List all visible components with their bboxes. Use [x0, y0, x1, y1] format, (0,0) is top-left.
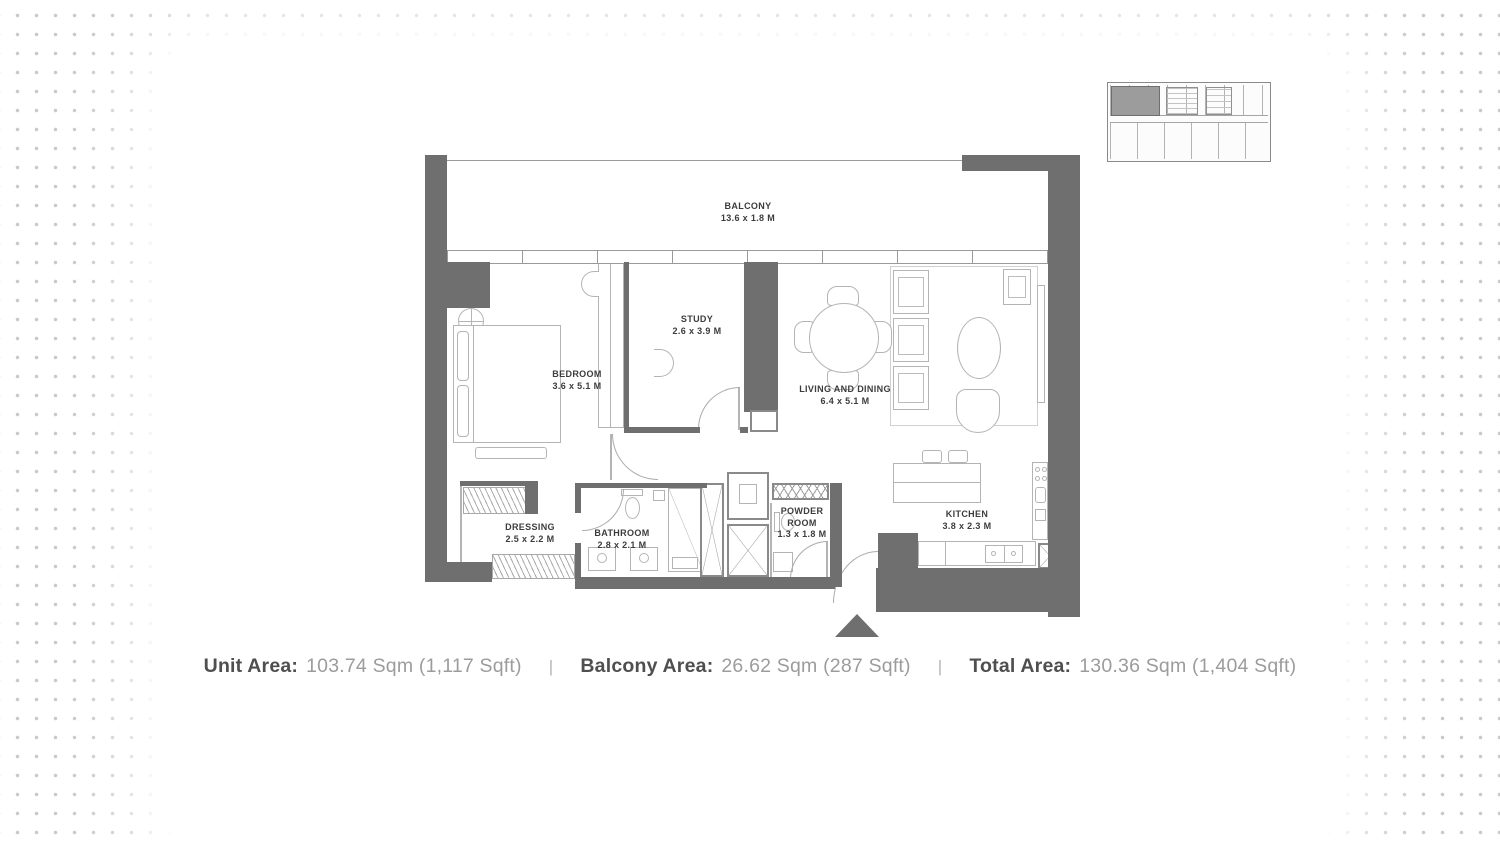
oven: [1035, 487, 1046, 503]
key-plan: [1107, 82, 1271, 162]
total-area-label: Total Area:: [969, 655, 1071, 678]
bed-pillow: [457, 331, 469, 381]
powder-sink: [773, 552, 793, 572]
counter-line: [945, 541, 946, 566]
stove-burner: [1042, 476, 1047, 481]
toilet-tank: [621, 489, 643, 496]
island-line: [894, 482, 980, 483]
wall-segment: [624, 262, 629, 430]
summary-separator: |: [549, 657, 554, 677]
sofa-seat: [893, 318, 929, 362]
kitchen-stool: [922, 450, 942, 463]
tv-console: [1037, 285, 1045, 403]
balcony-area-value: 26.62 Sqm (287 Sqft): [721, 655, 910, 678]
wall-segment: [525, 481, 538, 514]
wall-segment: [624, 427, 700, 433]
bed-line: [473, 325, 474, 443]
bed-pillow: [457, 385, 469, 437]
dressing-wardrobe: [492, 554, 575, 579]
wall-segment: [575, 483, 707, 488]
dressing-mirror: [581, 271, 599, 297]
wall-segment: [575, 577, 835, 589]
unit-area-label: Unit Area:: [204, 655, 298, 678]
lounge-chair: [956, 389, 1000, 433]
bedroom-wardrobe: [598, 262, 624, 428]
balcony-area-label: Balcony Area:: [580, 655, 713, 678]
kitchen-island: [893, 463, 981, 503]
study-basin: [654, 349, 674, 377]
wall-segment: [744, 262, 778, 412]
sofa-seat: [893, 270, 929, 314]
wall-segment: [830, 483, 842, 587]
room-label-powder-room: POWDER ROOM 1.3 x 1.8 M: [778, 506, 827, 541]
wardrobe-line: [610, 262, 611, 428]
floor-plan: BALCONY13.6 x 1.8 M BEDROOM3.6 x 5.1 M S…: [425, 153, 1080, 640]
room-label-study: STUDY2.6 x 3.9 M: [673, 313, 722, 337]
unit-area-value: 103.74 Sqm (1,117 Sqft): [306, 655, 522, 678]
bathroom-fixture: [653, 490, 665, 501]
ac-duct-inner: [739, 484, 757, 504]
key-plan-highlighted-unit: [1111, 86, 1160, 116]
room-label-living-dining: LIVING AND DINING6.4 x 5.1 M: [799, 383, 891, 407]
powder-wall-line: [770, 503, 772, 577]
sofa-seat: [893, 366, 929, 410]
powder-door-arc: [790, 541, 828, 579]
side-table: [1003, 269, 1031, 305]
entrance-arrow-icon: [835, 614, 879, 637]
study-door-arc: [698, 387, 740, 429]
wall-segment: [575, 483, 581, 513]
sink-drain: [991, 551, 996, 556]
sink-basin: [639, 553, 649, 563]
room-label-dressing: DRESSING2.5 x 2.2 M: [505, 521, 555, 545]
wall-segment: [425, 155, 447, 574]
duct-shaft: [700, 483, 724, 577]
summary-separator: |: [938, 657, 943, 677]
wall-segment: [740, 427, 748, 433]
room-label-balcony: BALCONY13.6 x 1.8 M: [721, 200, 775, 224]
dining-table: [809, 303, 879, 373]
sink-drain: [1011, 551, 1016, 556]
bedroom-door-arc: [612, 434, 658, 480]
duct-shaft: [727, 524, 769, 577]
bed: [453, 325, 561, 443]
wall-segment: [425, 562, 492, 582]
bed-bench: [475, 447, 547, 459]
key-plan-lower-units: [1110, 122, 1268, 159]
room-label-bathroom: BATHROOM2.8 x 2.1 M: [594, 527, 649, 551]
bathroom-door-arc: [582, 489, 624, 531]
sink-basin: [597, 553, 607, 563]
room-label-kitchen: KITCHEN3.8 x 2.3 M: [943, 508, 992, 532]
wall-segment: [878, 533, 918, 571]
key-plan-core: [1166, 87, 1198, 115]
room-label-bedroom: BEDROOM3.6 x 5.1 M: [552, 368, 601, 392]
wall-segment: [1048, 155, 1080, 617]
toilet-bowl: [625, 497, 640, 519]
kitchen-stool: [948, 450, 968, 463]
coffee-table: [957, 317, 1001, 379]
stove-burner: [1042, 467, 1047, 472]
key-plan-core: [1206, 87, 1232, 115]
wall-segment: [447, 262, 490, 308]
total-area-value: 130.36 Sqm (1,404 Sqft): [1079, 655, 1296, 678]
stove-burner: [1035, 467, 1040, 472]
stove-burner: [1035, 476, 1040, 481]
sink-divider: [1004, 545, 1005, 563]
shower-shelf: [672, 557, 698, 569]
wall-niche: [750, 410, 778, 432]
duct-grille: [772, 483, 829, 500]
cabinet: [1035, 509, 1046, 521]
wall-segment: [876, 568, 1080, 612]
area-summary: Unit Area: 103.74 Sqm (1,117 Sqft) | Bal…: [0, 655, 1500, 678]
